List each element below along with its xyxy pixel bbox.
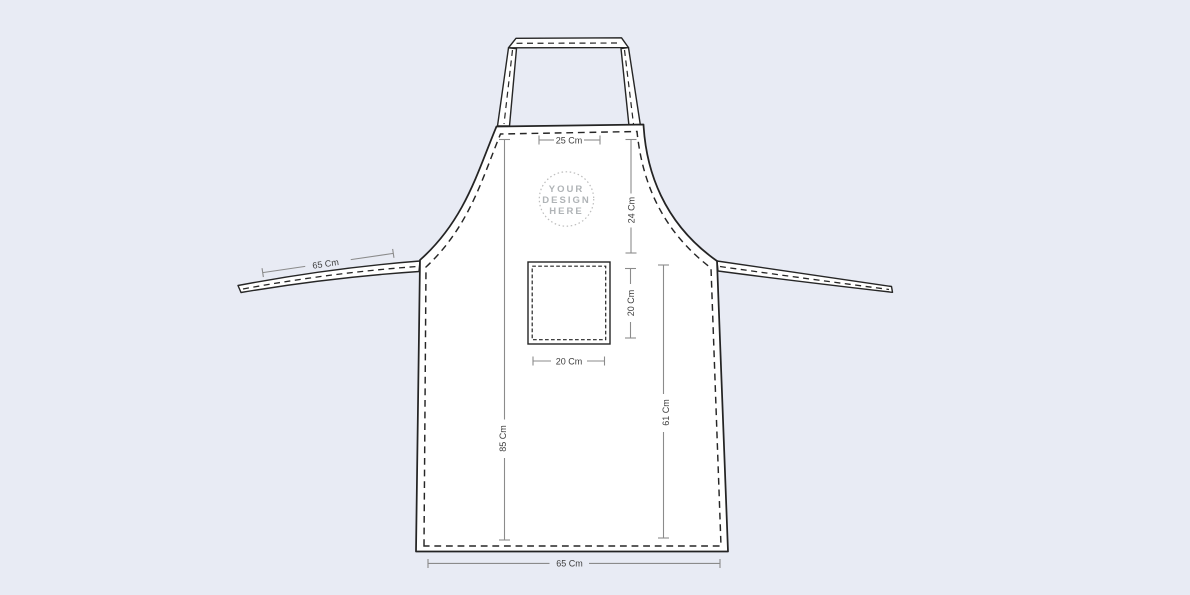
svg-text:20 Cm: 20 Cm [626, 290, 636, 317]
svg-text:YOUR: YOUR [549, 184, 584, 195]
svg-text:65 Cm: 65 Cm [556, 559, 583, 569]
svg-text:25 Cm: 25 Cm [556, 136, 583, 146]
svg-text:85 Cm: 85 Cm [498, 425, 508, 452]
svg-text:20 Cm: 20 Cm [556, 356, 583, 366]
svg-text:DESIGN: DESIGN [542, 195, 590, 206]
svg-text:61 Cm: 61 Cm [661, 399, 671, 426]
svg-text:HERE: HERE [549, 206, 583, 217]
svg-text:24 Cm: 24 Cm [626, 197, 636, 224]
